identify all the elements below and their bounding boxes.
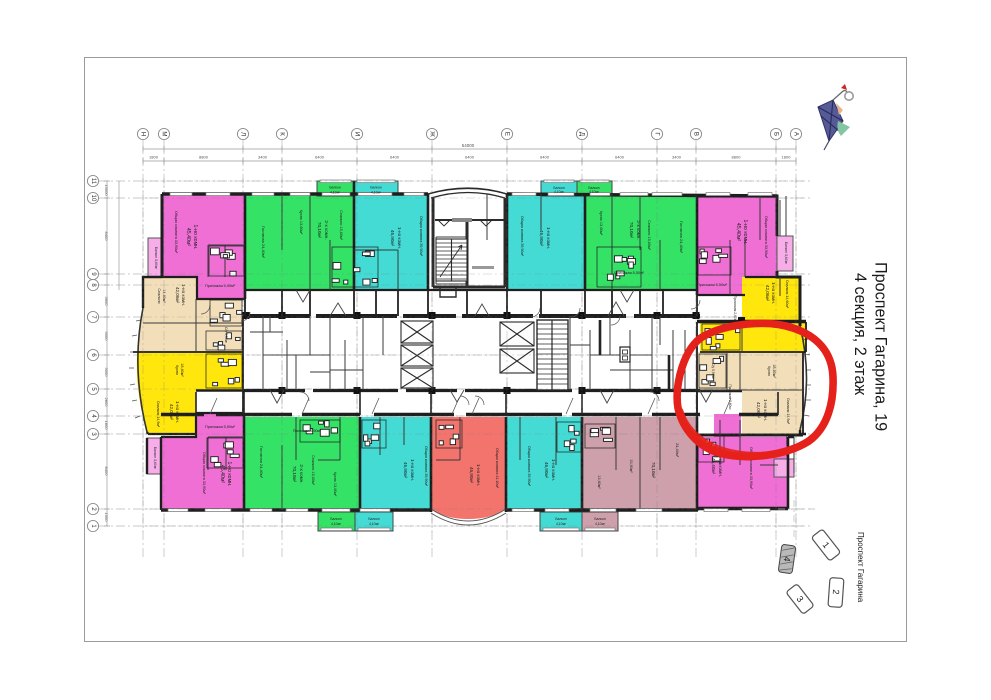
svg-text:Проспект Гагарина, 19: Проспект Гагарина, 19 [872, 262, 890, 431]
svg-text:3400: 3400 [672, 155, 682, 160]
svg-text:Гостиная 24,40м²: Гостиная 24,40м² [679, 221, 684, 254]
svg-text:46,90м²: 46,90м² [390, 230, 395, 247]
svg-text:Прихожая 5,50м²: Прихожая 5,50м² [293, 429, 322, 433]
svg-text:2-х комн.: 2-х комн. [636, 220, 641, 239]
svg-text:4,10м²: 4,10м² [595, 522, 606, 526]
svg-text:Балкон 3,60м²: Балкон 3,60м² [154, 247, 158, 270]
svg-text:Спальня: Спальня [157, 288, 161, 303]
svg-text:1-но комн.: 1-но комн. [742, 220, 748, 245]
svg-text:6400: 6400 [615, 155, 625, 160]
svg-text:Прихожая 5,50м²: Прихожая 5,50м² [614, 271, 645, 275]
svg-text:Балкон: Балкон [555, 517, 566, 521]
svg-text:46,90м²: 46,90м² [469, 467, 474, 484]
svg-text:70,10м²: 70,10м² [317, 222, 322, 239]
svg-text:Общая комната 33,90м²: Общая комната 33,90м² [202, 452, 206, 495]
svg-text:Прихожая 5,50м²: Прихожая 5,50м² [205, 425, 236, 429]
svg-text:1500: 1500 [104, 513, 109, 523]
svg-text:18,60м²: 18,60м² [772, 364, 776, 378]
svg-text:46,90м²: 46,90м² [539, 230, 544, 247]
svg-text:1800: 1800 [782, 155, 792, 160]
svg-text:42,06м²: 42,06м² [175, 287, 180, 304]
svg-text:1-но комн.: 1-но комн. [192, 225, 198, 250]
svg-text:1-но комн.: 1-но комн. [551, 459, 556, 481]
svg-text:8400: 8400 [104, 467, 109, 477]
svg-text:1-но комн.: 1-но комн. [181, 284, 186, 306]
svg-text:1-но комн.: 1-но комн. [718, 455, 723, 477]
svg-text:42,05м²: 42,05м² [169, 404, 174, 421]
svg-text:Прихожая 5,90м²: Прихожая 5,90м² [205, 284, 236, 288]
svg-text:Кухня 13,60м²: Кухня 13,60м² [599, 211, 603, 236]
svg-text:4,10м²: 4,10м² [371, 191, 382, 195]
svg-text:4,10м²: 4,10м² [330, 191, 341, 195]
svg-text:18,60м²: 18,60м² [180, 363, 184, 377]
svg-text:4 секция, 2 этаж: 4 секция, 2 этаж [851, 273, 869, 395]
svg-text:Балкон: Балкон [330, 517, 341, 521]
svg-text:Ж: Ж [429, 131, 436, 137]
svg-text:46,90м²: 46,90м² [544, 462, 549, 479]
svg-text:1-но комн.: 1-но комн. [397, 227, 402, 249]
svg-text:Балкон: Балкон [594, 517, 605, 521]
svg-text:4,10м²: 4,10м² [556, 522, 567, 526]
svg-text:Балкон 3,60м²: Балкон 3,60м² [784, 242, 788, 265]
svg-text:К: К [279, 132, 286, 136]
svg-text:54000: 54000 [462, 143, 475, 148]
svg-text:Проспект Гагарина: Проспект Гагарина [856, 532, 865, 603]
svg-text:С/у 5,90м²: С/у 5,90м² [224, 327, 228, 344]
svg-text:3400: 3400 [258, 155, 268, 160]
svg-text:1-но комн.: 1-но комн. [546, 227, 551, 249]
svg-text:45,40м²: 45,40м² [735, 223, 741, 242]
svg-text:Гостиная 24,40м²: Гостиная 24,40м² [261, 226, 266, 259]
svg-text:42,06м²: 42,06м² [765, 285, 770, 302]
svg-text:1-но комн.: 1-но комн. [226, 462, 232, 487]
svg-text:Балкон: Балкон [329, 186, 340, 190]
svg-text:Общая комната 33,90м²: Общая комната 33,90м² [764, 216, 768, 259]
svg-text:Спальня 14,9м²: Спальня 14,9м² [156, 401, 160, 428]
svg-text:5000: 5000 [104, 332, 109, 342]
svg-text:2: 2 [831, 589, 841, 595]
svg-text:Спальня 15,60м²: Спальня 15,60м² [647, 220, 651, 250]
svg-text:15,90м²: 15,90м² [629, 459, 633, 473]
svg-text:4,10м²: 4,10м² [554, 190, 565, 194]
svg-text:1800: 1800 [149, 155, 159, 160]
svg-text:46,90м²: 46,90м² [403, 462, 408, 479]
svg-text:Кухня: Кухня [767, 366, 771, 376]
svg-text:13,60м²: 13,60м² [597, 475, 601, 489]
svg-text:В: В [693, 132, 700, 136]
svg-text:45,40м²: 45,40м² [711, 458, 716, 475]
svg-text:Спальня 14,9м²: Спальня 14,9м² [786, 398, 790, 425]
svg-text:6400: 6400 [540, 155, 550, 160]
svg-text:Спальня 15,60м²: Спальня 15,60м² [311, 455, 315, 485]
svg-text:8800: 8800 [199, 155, 209, 160]
svg-text:Общая комната 41,10м²: Общая комната 41,10м² [495, 448, 499, 489]
svg-text:2800: 2800 [104, 398, 109, 408]
svg-text:Балкон 3,60м²: Балкон 3,60м² [153, 447, 157, 470]
svg-text:Прихожая 2,60м²: Прихожая 2,60м² [733, 296, 737, 324]
svg-text:Общая комната 39,90м²: Общая комната 39,90м² [520, 216, 524, 257]
svg-text:С/у 5,90м²: С/у 5,90м² [711, 363, 715, 380]
svg-text:Б: Б [773, 132, 780, 136]
svg-text:24,40м²: 24,40м² [675, 443, 680, 458]
svg-text:Н: Н [140, 132, 147, 136]
svg-text:1-но комн.: 1-но комн. [175, 401, 180, 423]
svg-text:10: 10 [90, 195, 96, 202]
svg-text:11: 11 [90, 178, 96, 185]
svg-text:3600: 3600 [104, 297, 109, 307]
svg-text:6400: 6400 [315, 155, 325, 160]
svg-text:Кухня 13,60м²: Кухня 13,60м² [299, 210, 303, 235]
svg-text:3000: 3000 [104, 368, 109, 378]
svg-text:Л: Л [240, 132, 247, 136]
svg-text:70,10м²: 70,10м² [292, 466, 297, 483]
svg-text:4,10м²: 4,10м² [589, 190, 600, 194]
svg-text:Балкон: Балкон [368, 517, 379, 521]
svg-text:45,40м²: 45,40м² [185, 228, 191, 247]
svg-text:Прихожая 2,60м²: Прихожая 2,60м² [728, 384, 732, 409]
svg-text:70,10м²: 70,10м² [629, 222, 634, 239]
svg-text:8400: 8400 [104, 232, 109, 242]
svg-text:Гостиная 24,40м²: Гостиная 24,40м² [259, 446, 264, 479]
svg-text:70,10м²: 70,10м² [651, 462, 656, 479]
svg-text:1-но комн.: 1-но комн. [763, 399, 768, 421]
svg-text:Кухня: Кухня [175, 365, 179, 375]
svg-text:6400: 6400 [390, 155, 400, 160]
svg-text:1-но комн.: 1-но комн. [476, 464, 481, 486]
svg-text:1-но комн.: 1-но комн. [410, 459, 415, 481]
svg-text:Общая комната 39,90м²: Общая комната 39,90м² [527, 446, 531, 487]
svg-text:Балкон: Балкон [370, 186, 381, 190]
svg-text:45,40м²: 45,40м² [219, 465, 225, 484]
svg-text:И: И [354, 132, 361, 136]
svg-text:Общая комната 39,90м²: Общая комната 39,90м² [424, 446, 428, 487]
svg-text:13000: 13000 [104, 184, 109, 196]
svg-text:4,10м²: 4,10м² [331, 522, 342, 526]
svg-text:М: М [161, 131, 168, 136]
svg-text:Общая комната 39,90м²: Общая комната 39,90м² [419, 216, 423, 257]
svg-text:2-х комн.: 2-х комн. [324, 220, 329, 239]
svg-text:1800: 1800 [104, 421, 109, 431]
svg-text:8800: 8800 [732, 155, 742, 160]
svg-text:Спальня 15,60м²: Спальня 15,60м² [339, 210, 343, 240]
svg-text:4,10м²: 4,10м² [369, 522, 380, 526]
svg-text:6400: 6400 [465, 155, 475, 160]
svg-text:Кухня 13,60м²: Кухня 13,60м² [333, 472, 337, 497]
svg-text:2-х комн.: 2-х комн. [299, 464, 304, 483]
svg-text:Общая комната 33,90м²: Общая комната 33,90м² [174, 211, 178, 254]
svg-text:Е: Е [504, 132, 511, 136]
svg-text:Спальня 14,60м²: Спальня 14,60м² [785, 280, 789, 309]
